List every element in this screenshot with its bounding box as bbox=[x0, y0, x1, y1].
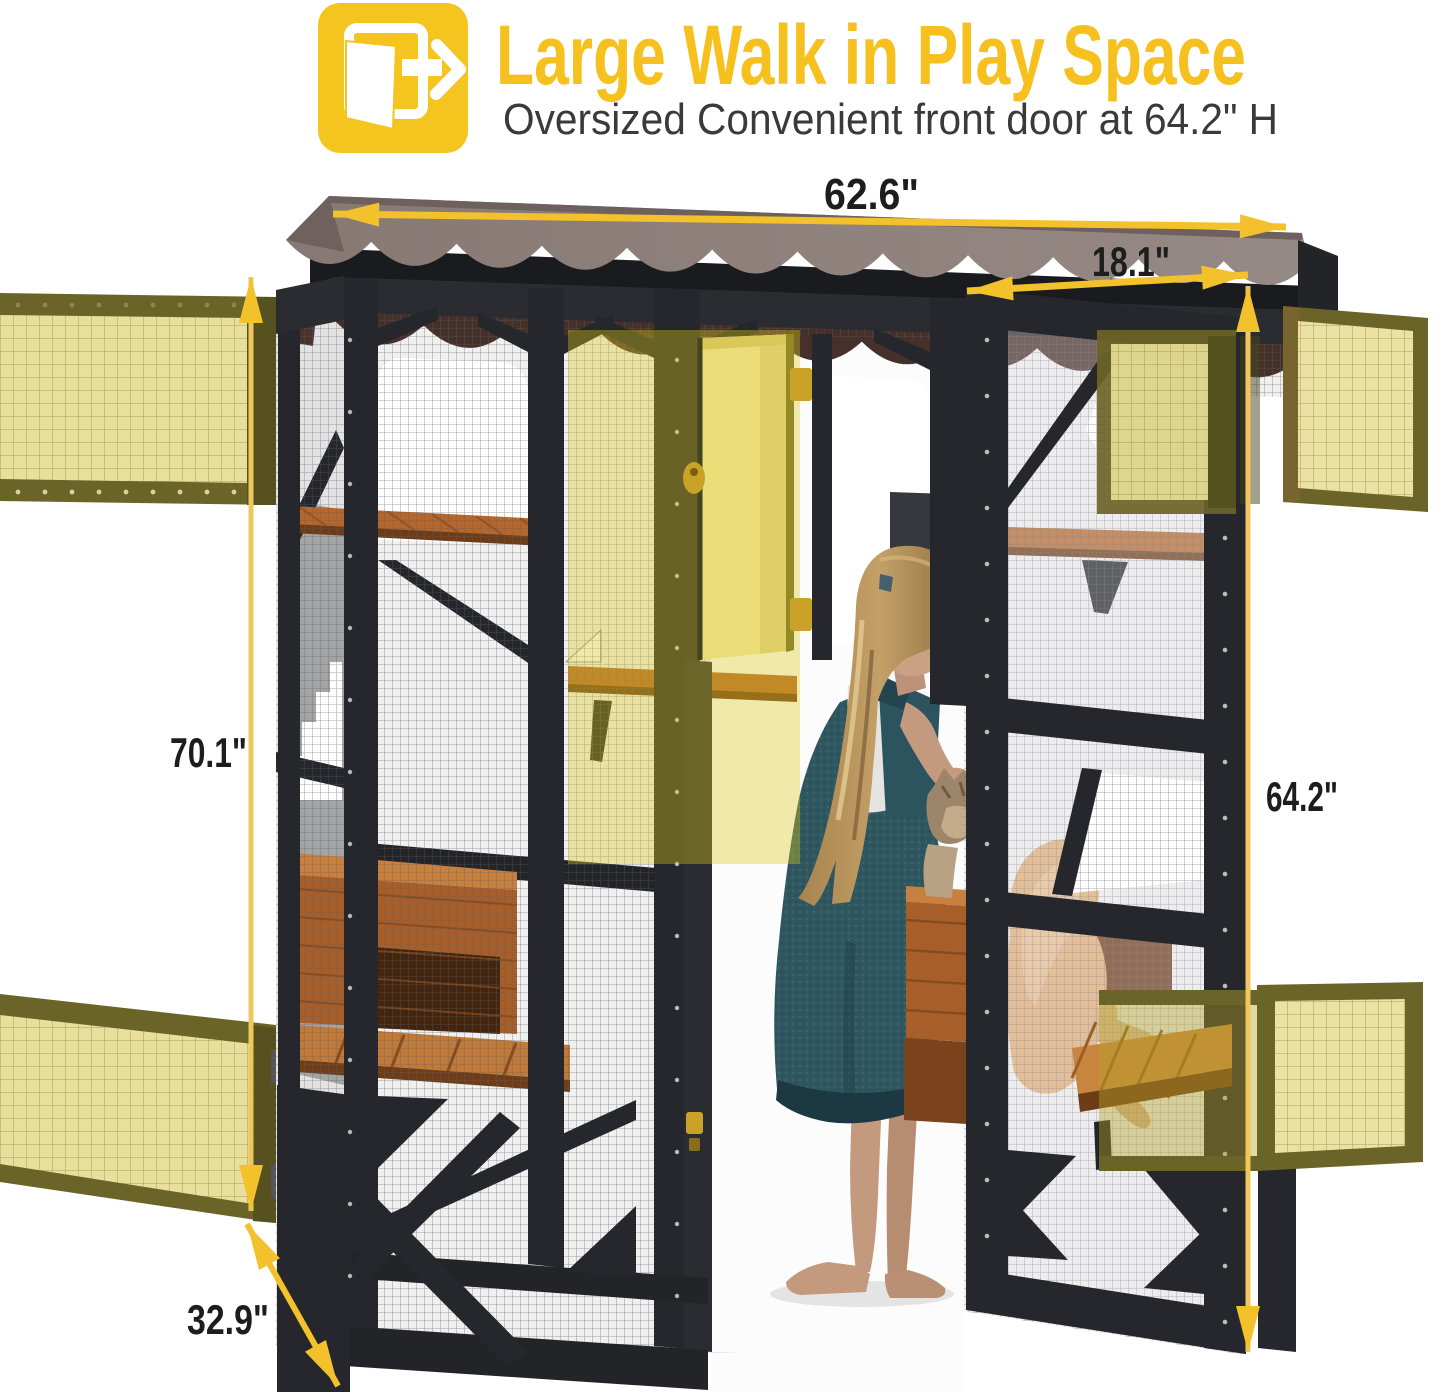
svg-text:Large Walk in Play Space: Large Walk in Play Space bbox=[496, 8, 1246, 102]
svg-text:64.2": 64.2" bbox=[1266, 773, 1338, 820]
svg-text:62.6": 62.6" bbox=[824, 170, 919, 219]
svg-text:70.1": 70.1" bbox=[170, 729, 247, 776]
svg-text:Oversized Convenient front doo: Oversized Convenient front door at 64.2"… bbox=[503, 95, 1278, 144]
svg-text:18.1": 18.1" bbox=[1092, 238, 1170, 285]
svg-text:32.9": 32.9" bbox=[187, 1296, 269, 1343]
